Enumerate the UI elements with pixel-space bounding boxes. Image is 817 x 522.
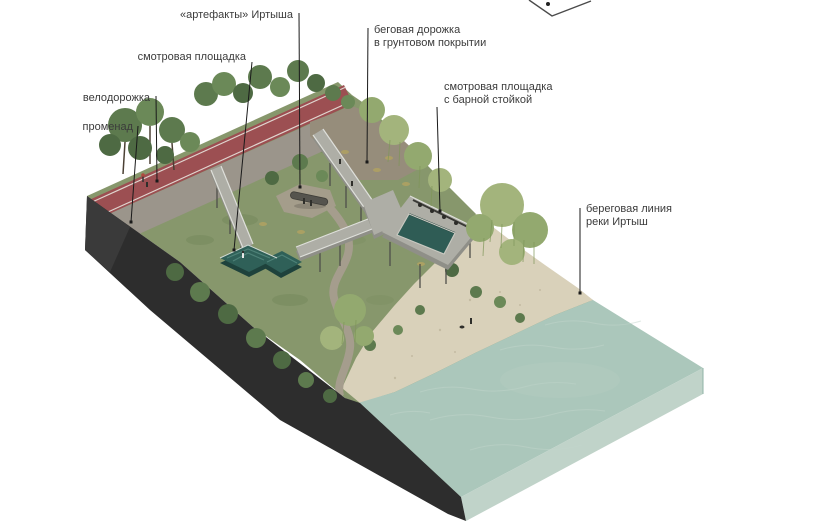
label-shoreline: береговая линия реки Иртыш — [586, 203, 672, 229]
label-text: реки Иртыш — [586, 216, 672, 229]
label-text: смотровая площадка — [138, 51, 246, 64]
label-viewing-platform-bar: смотровая площадка с барной стойкой — [444, 81, 552, 107]
label-text: велодорожка — [83, 92, 150, 105]
label-text: с барной стойкой — [444, 94, 552, 107]
label-text: «артефакты» Иртыша — [180, 9, 293, 22]
label-artefacts: «артефакты» Иртыша — [180, 9, 293, 22]
site-diagram-canvas: «артефакты» Иртыша беговая дорожка в гру… — [0, 0, 817, 522]
label-bike-path: велодорожка — [83, 92, 150, 105]
label-text: беговая дорожка — [374, 24, 486, 37]
water-sheen — [500, 362, 620, 398]
platform-visitor — [242, 251, 244, 258]
label-text: в грунтовом покрытии — [374, 37, 486, 50]
label-viewing-platform: смотровая площадка — [138, 51, 246, 64]
label-text: береговая линия — [586, 203, 672, 216]
label-running-track: беговая дорожка в грунтовом покрытии — [374, 24, 486, 50]
label-text: смотровая площадка — [444, 81, 552, 94]
label-text: променад — [83, 121, 133, 134]
label-promenade: променад — [83, 121, 133, 134]
north-arrow-icon — [529, 0, 591, 16]
site-plan-illustration — [0, 0, 817, 522]
